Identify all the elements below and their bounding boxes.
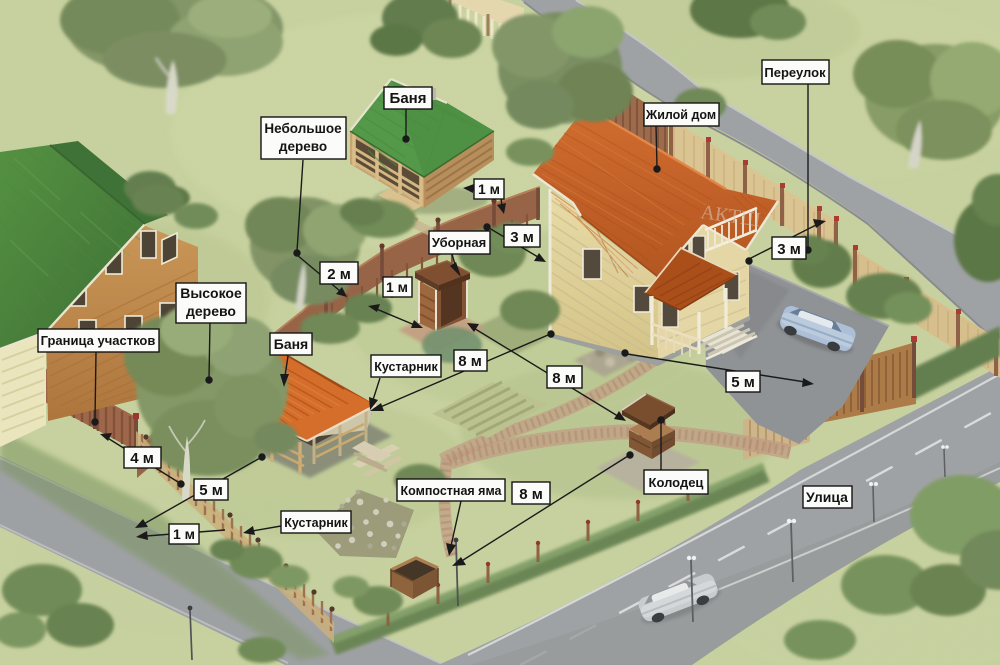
svg-text:5 м: 5 м [199,482,223,499]
svg-text:Кустарник: Кустарник [374,360,438,374]
svg-text:8 м: 8 м [458,353,482,370]
svg-text:Улица: Улица [806,489,848,505]
svg-text:2 м: 2 м [327,266,351,283]
svg-text:Высокое: Высокое [180,285,242,301]
svg-text:Баня: Баня [274,336,308,352]
svg-text:дерево: дерево [186,303,236,319]
svg-text:8 м: 8 м [519,486,543,503]
svg-text:Уборная: Уборная [432,235,486,250]
svg-text:4 м: 4 м [130,450,154,467]
svg-text:3 м: 3 м [510,229,534,246]
svg-text:5 м: 5 м [731,374,755,391]
svg-text:Колодец: Колодец [649,475,704,490]
svg-text:Переулок: Переулок [764,65,826,80]
svg-text:Небольшое: Небольшое [264,121,342,136]
svg-text:Кустарник: Кустарник [284,516,348,530]
svg-text:Жилой дом: Жилой дом [645,108,716,122]
svg-text:1 м: 1 м [173,526,195,542]
svg-text:дерево: дерево [279,139,327,154]
svg-text:8 м: 8 м [552,370,576,387]
svg-text:Граница участков: Граница участков [41,333,156,348]
svg-text:3 м: 3 м [777,241,801,258]
svg-text:Компостная яма: Компостная яма [400,484,502,498]
svg-text:1 м: 1 м [478,181,500,197]
svg-text:1 м: 1 м [386,279,408,295]
svg-text:Баня: Баня [390,90,427,107]
